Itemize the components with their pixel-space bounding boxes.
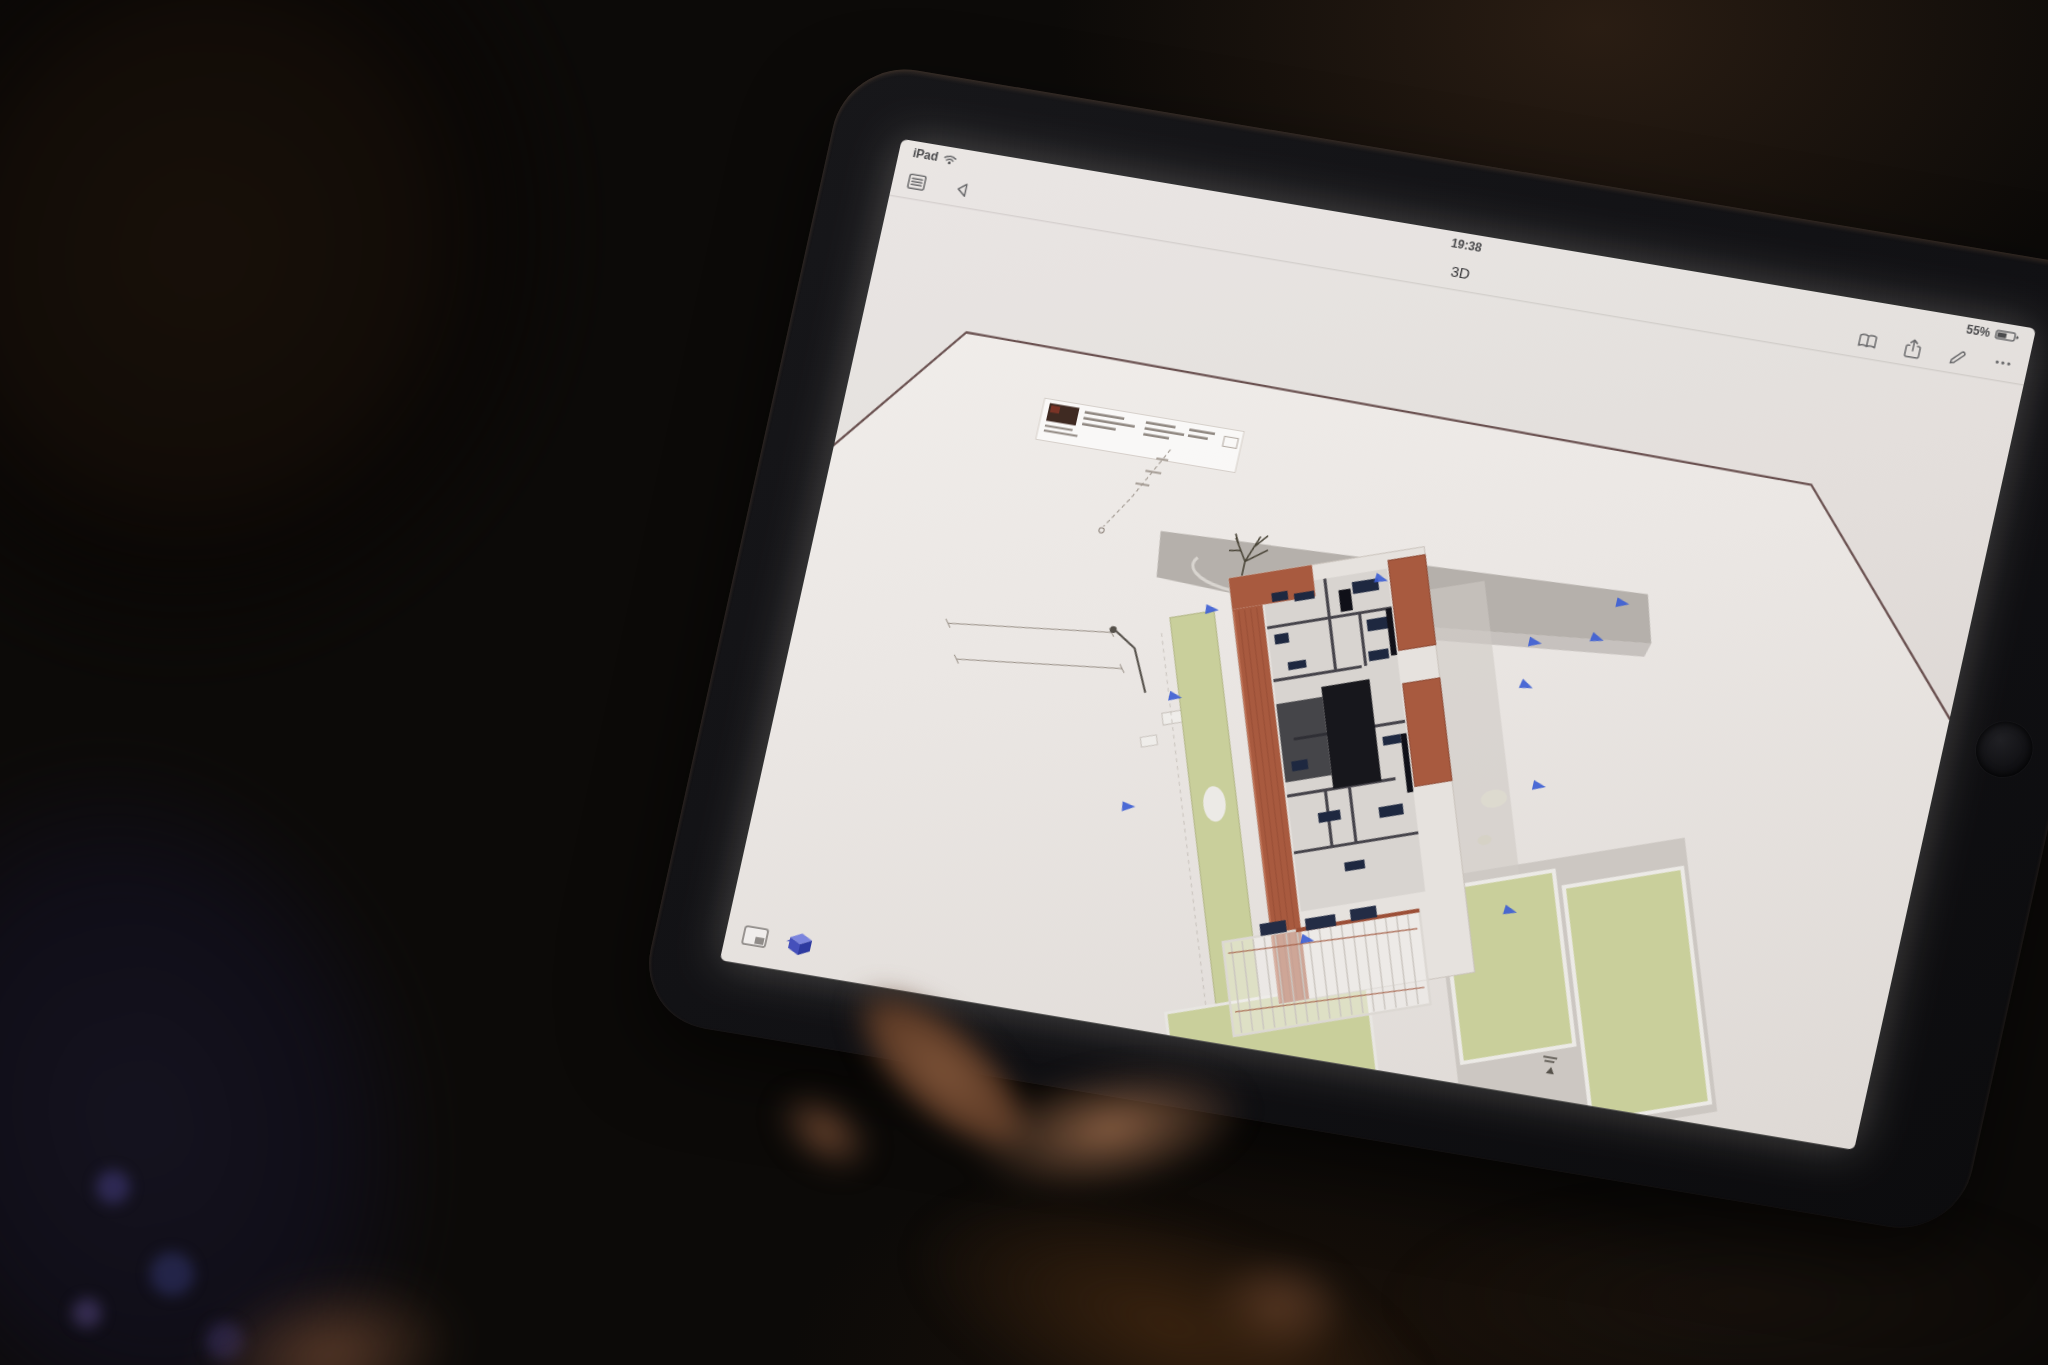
thumb [760,1072,890,1192]
viewpoint-marker[interactable] [1519,679,1535,693]
photo-scene: { "device": { "status_bar": { "carrier":… [0,0,2048,1365]
person-shoulder [0,679,523,1365]
street-lamp [1098,626,1159,693]
site-structure [1140,735,1157,747]
markup-pencil-icon[interactable] [1944,342,1973,369]
dimension-lines [937,419,1174,690]
book-icon[interactable] [1853,327,1882,354]
sheet-title-block [1036,398,1244,472]
more-ellipsis-icon[interactable]: ••• [1989,350,2018,377]
share-icon[interactable] [1899,335,1928,362]
back-icon[interactable] [948,175,977,202]
sheet-view-icon[interactable] [737,921,774,952]
person-hand [780,1005,1500,1365]
viewpoint-marker[interactable] [1532,780,1547,792]
sheet-list-icon[interactable] [903,168,932,195]
shirt-bokeh-dot [150,1252,194,1296]
shirt-bokeh-dot [72,1298,102,1328]
right-lawn-b [1564,868,1710,1122]
viewpoint-marker[interactable] [1122,801,1136,811]
person-head-blur [0,0,704,779]
shirt-bokeh-dot [96,1170,130,1204]
model-view-3d-icon[interactable] [780,929,817,960]
home-button[interactable] [1971,717,2038,781]
